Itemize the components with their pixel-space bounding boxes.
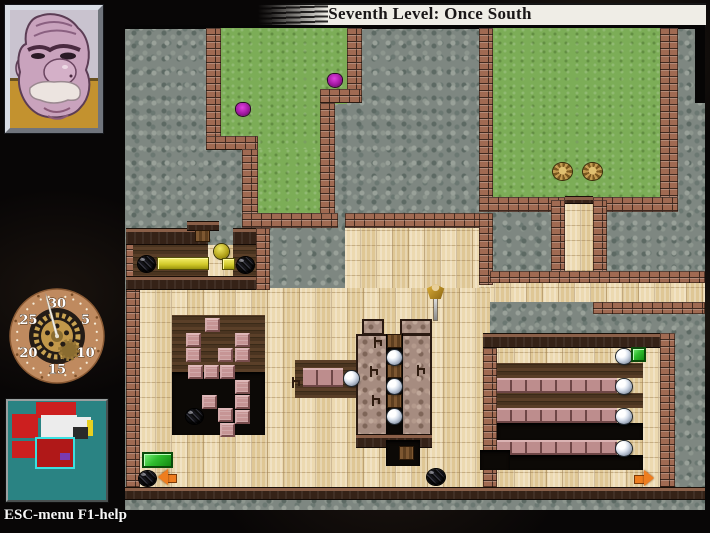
pit: [172, 372, 265, 435]
svg-text:15: 15: [48, 363, 66, 378]
orb: [616, 379, 632, 394]
clock-face-icon: 30510152025: [7, 286, 107, 386]
wall: [660, 333, 675, 487]
wall: [551, 200, 565, 273]
pit: [480, 450, 510, 470]
pit: [497, 423, 643, 440]
orb: [344, 371, 359, 386]
level-minimap: [6, 399, 108, 502]
pinkblock: [186, 348, 201, 362]
room: [41, 415, 77, 437]
woodtile: [195, 230, 210, 242]
creature: [583, 163, 602, 180]
bomb: [237, 257, 254, 273]
pinkblock: [205, 318, 220, 332]
arrow-w: [158, 469, 178, 485]
bomb: [186, 409, 203, 424]
pinkblock: [202, 395, 217, 409]
tan: [345, 228, 490, 290]
darkwood: [497, 363, 643, 378]
wall: [206, 136, 258, 150]
woodtile: [387, 334, 402, 348]
grass: [493, 28, 660, 199]
level-title-banner: Seventh Level: Once South: [250, 3, 706, 27]
bomb: [427, 469, 445, 485]
room: [12, 414, 38, 438]
pinkblock: [188, 365, 203, 379]
orb: [616, 409, 632, 424]
woodtile: [399, 446, 414, 460]
svg-text:25: 25: [19, 313, 37, 328]
bracket: [370, 366, 378, 377]
pinkblock: [235, 348, 250, 362]
bomb: [138, 256, 155, 272]
drod-game-screen: { "banner": {"title": "Seventh Level: On…: [0, 0, 710, 533]
brickrow: [497, 408, 617, 423]
darkwall: [565, 196, 593, 204]
orb: [387, 409, 402, 424]
black: [695, 25, 705, 103]
wall: [206, 28, 221, 150]
wall: [593, 302, 705, 314]
pinkblock: [235, 395, 250, 409]
pinkcobble: [362, 319, 384, 335]
brickrow: [497, 378, 617, 393]
woodtile: [387, 394, 402, 408]
beethro-face-icon: [10, 10, 98, 128]
darkwall: [483, 333, 660, 348]
wall: [242, 213, 338, 228]
ydoor: [157, 257, 209, 270]
player: [425, 283, 447, 321]
wall: [242, 149, 258, 215]
grass: [221, 28, 320, 150]
pinkblock: [218, 348, 233, 362]
bracket: [374, 337, 382, 348]
pinkblock: [220, 423, 235, 437]
pinkblock: [186, 333, 201, 347]
tan: [479, 283, 705, 302]
pinkblock: [218, 408, 233, 422]
bomb: [139, 471, 156, 486]
wall: [320, 103, 335, 215]
pinkblock: [220, 365, 235, 379]
key-hints: ESC-menu F1-help: [4, 507, 127, 524]
orb: [387, 379, 402, 394]
room-map[interactable]: [125, 25, 705, 510]
gdoor: [631, 347, 646, 362]
brickrow: [303, 368, 343, 387]
oliveorb: [214, 244, 229, 259]
gdoor: [142, 452, 173, 468]
darkwall: [126, 276, 258, 290]
roach: [236, 103, 250, 116]
creature: [553, 163, 572, 180]
room: [73, 427, 88, 439]
wall: [320, 89, 362, 103]
svg-text:20: 20: [19, 346, 37, 361]
pinkblock: [204, 365, 219, 379]
player-portrait: [5, 5, 103, 133]
pinkblock: [235, 333, 250, 347]
wall: [345, 213, 493, 228]
level-title: Seventh Level: Once South: [280, 4, 580, 26]
orb: [387, 350, 402, 365]
wall: [490, 271, 705, 283]
ydoor: [222, 258, 235, 270]
brickrow: [497, 440, 617, 455]
orb: [616, 349, 632, 364]
room: [60, 453, 70, 460]
pinkcobble: [400, 319, 432, 335]
bracket: [372, 395, 380, 406]
wall: [660, 28, 678, 212]
bracket: [417, 365, 425, 376]
pinkblock: [235, 380, 250, 394]
wall: [479, 28, 493, 212]
move-clock: 30510152025: [7, 286, 107, 386]
svg-text:5: 5: [81, 313, 90, 328]
darkwood: [497, 393, 643, 408]
svg-text:10: 10: [77, 346, 95, 361]
wall: [593, 200, 607, 273]
roach: [328, 74, 342, 87]
darkwall: [125, 487, 705, 500]
grass: [258, 149, 320, 215]
pit: [497, 455, 643, 470]
orb: [616, 441, 632, 456]
bracket: [292, 377, 300, 388]
wall: [256, 228, 270, 290]
pinkblock: [235, 410, 250, 424]
arrow-e: [633, 470, 654, 487]
woodtile: [387, 364, 402, 378]
